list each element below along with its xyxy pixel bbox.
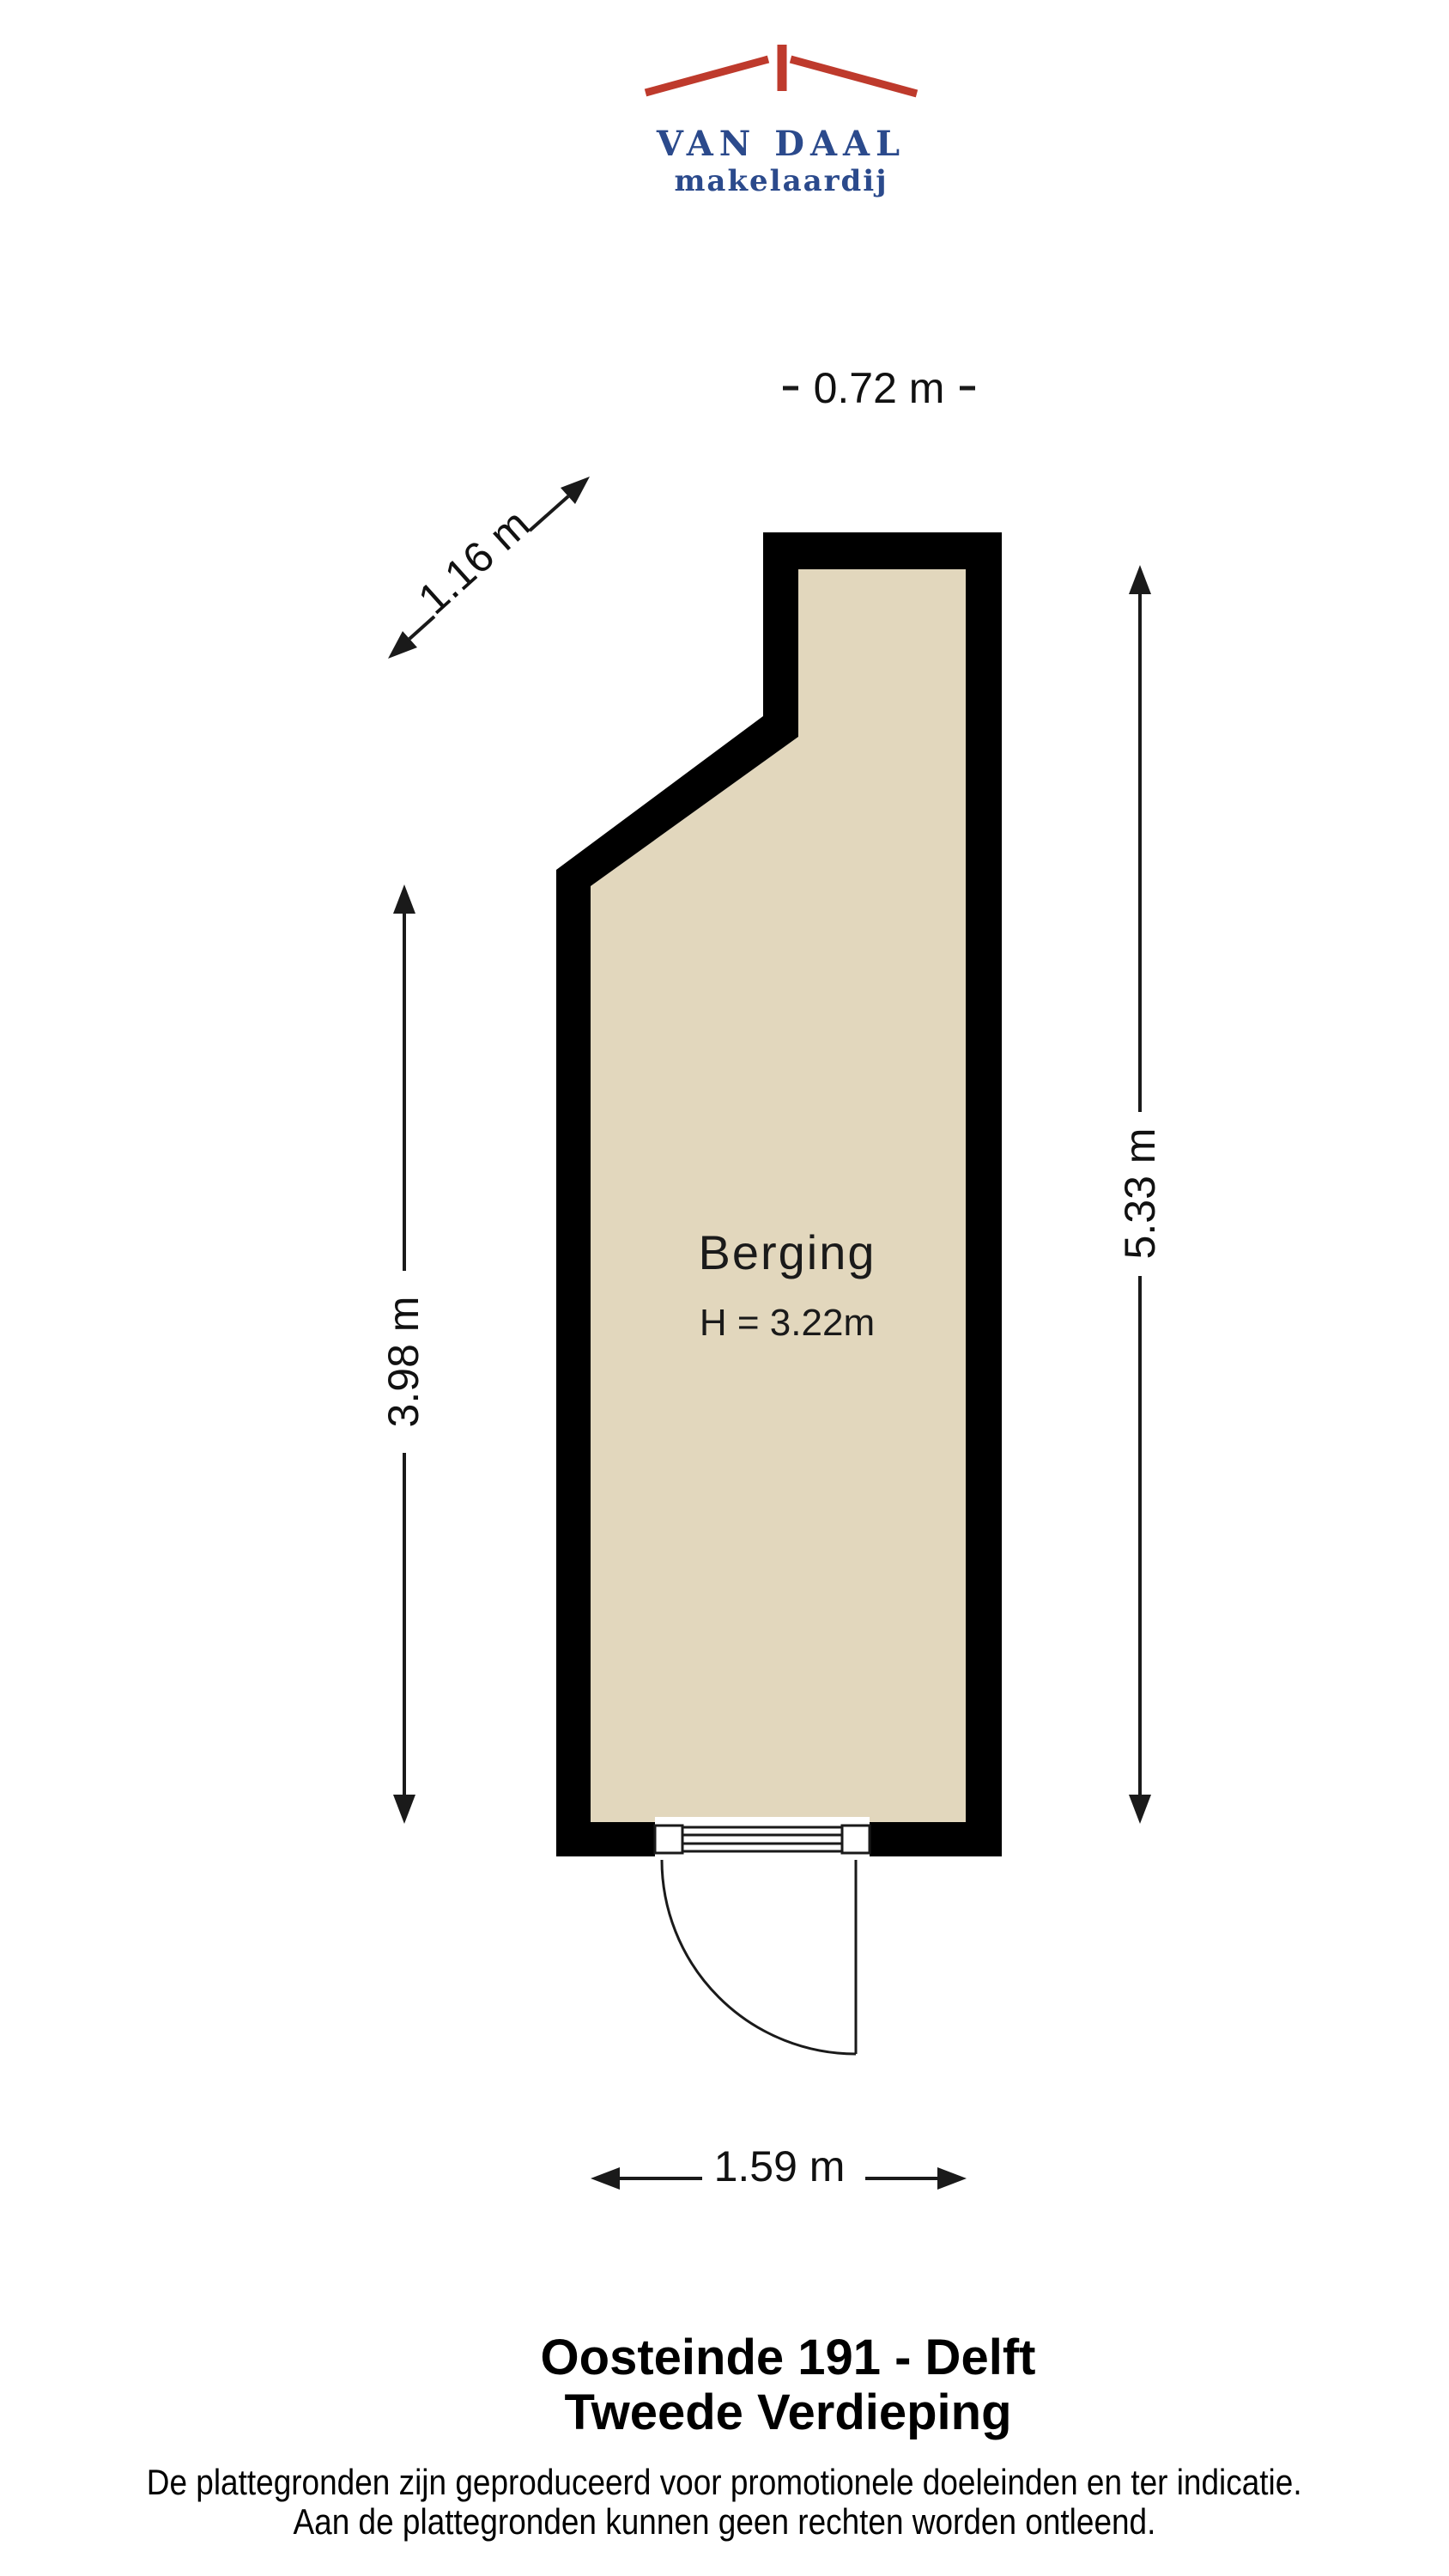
- door-swing-arc: [662, 1860, 856, 2054]
- room-label: Berging: [615, 1224, 959, 1280]
- door-panel: [682, 1827, 842, 1851]
- disclaimer-line-1: De plattegronden zijn geproduceerd voor …: [38, 2461, 1411, 2504]
- door-jamb-left: [655, 1826, 682, 1853]
- room-height-label: H = 3.22m: [615, 1298, 959, 1348]
- door-jamb-right: [842, 1826, 870, 1853]
- disclaimer-line-2: Aan de plattegronden kunnen geen rechten…: [38, 2500, 1411, 2543]
- page-subtitle: Tweede Verdieping: [359, 2384, 1217, 2440]
- page-title: Oosteinde 191 - Delft: [359, 2329, 1217, 2385]
- room-floor: [591, 569, 966, 1822]
- floorplan-page: VAN DAAL makelaardij: [0, 0, 1449, 2576]
- dimension-label-left: 3.98 m: [378, 1233, 429, 1491]
- dimension-label-top: 0.72 m: [750, 362, 1008, 414]
- dimension-label-right: 5.33 m: [1114, 1065, 1166, 1322]
- dimension-label-bottom: 1.59 m: [651, 2141, 908, 2192]
